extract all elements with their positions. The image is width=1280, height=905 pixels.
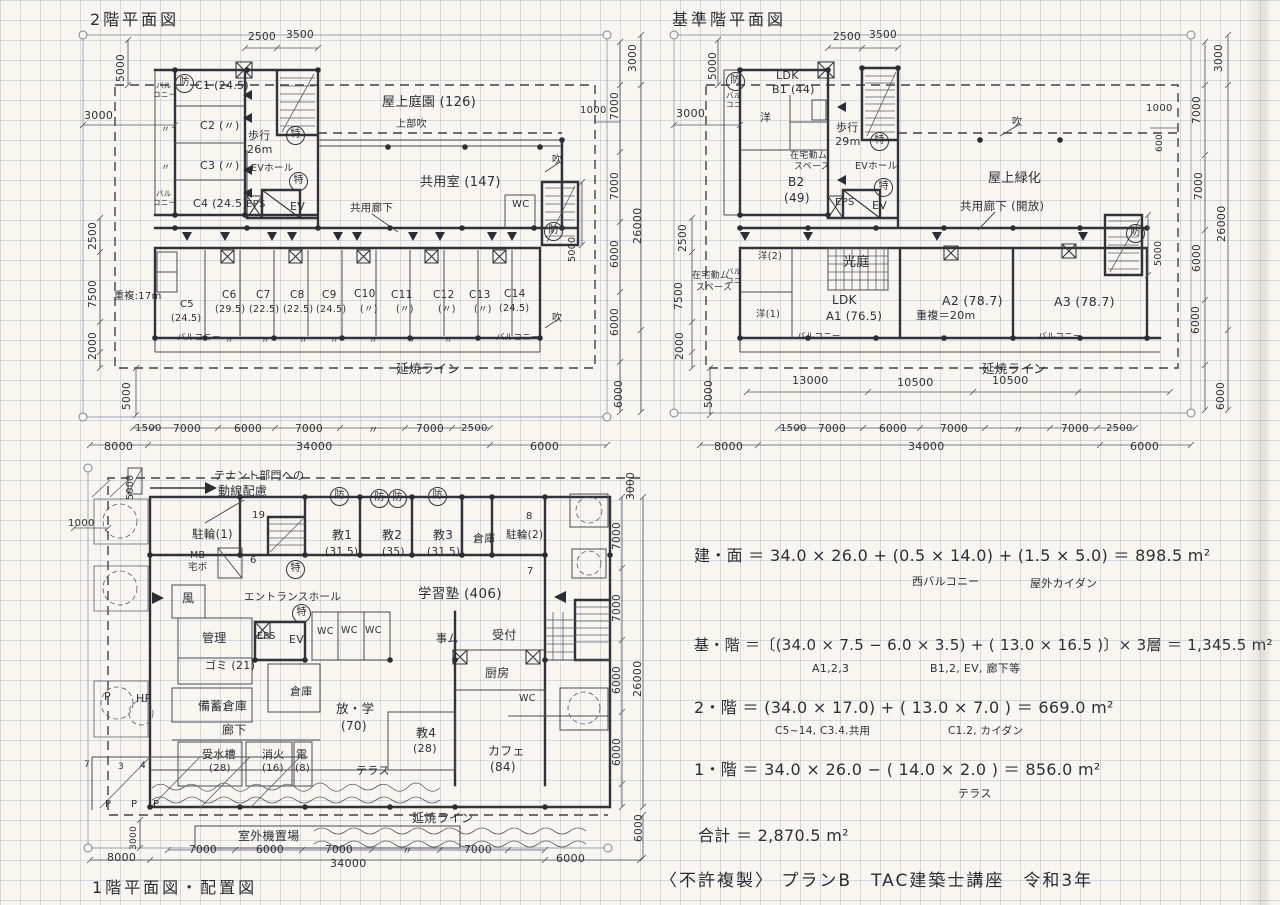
scan-shadow	[1246, 0, 1272, 905]
datum-circles	[79, 31, 1195, 852]
sheet-footer: 〈不許複製〉 プランB TAC建築士講座 令和3年	[660, 866, 1093, 891]
hatch-lines	[92, 72, 1140, 847]
plan-linework	[0, 0, 1280, 905]
plan-thin-lines	[92, 70, 1160, 848]
column-dots	[147, 65, 1150, 810]
plan-2f-title: 2階平面図	[90, 6, 179, 30]
plan-2f-walls	[150, 68, 1160, 807]
door-triangles	[150, 90, 1088, 604]
axis-lines	[83, 35, 1191, 848]
plan-standard-title: 基準階平面図	[672, 6, 786, 30]
shaft-boxes	[221, 62, 1076, 664]
graph-paper-sheet: 2階平面図 基準階平面図 1階平面図・配置図 25003500300050002…	[0, 0, 1280, 905]
plan-1f-title: 1階平面図・配置図	[92, 874, 257, 898]
